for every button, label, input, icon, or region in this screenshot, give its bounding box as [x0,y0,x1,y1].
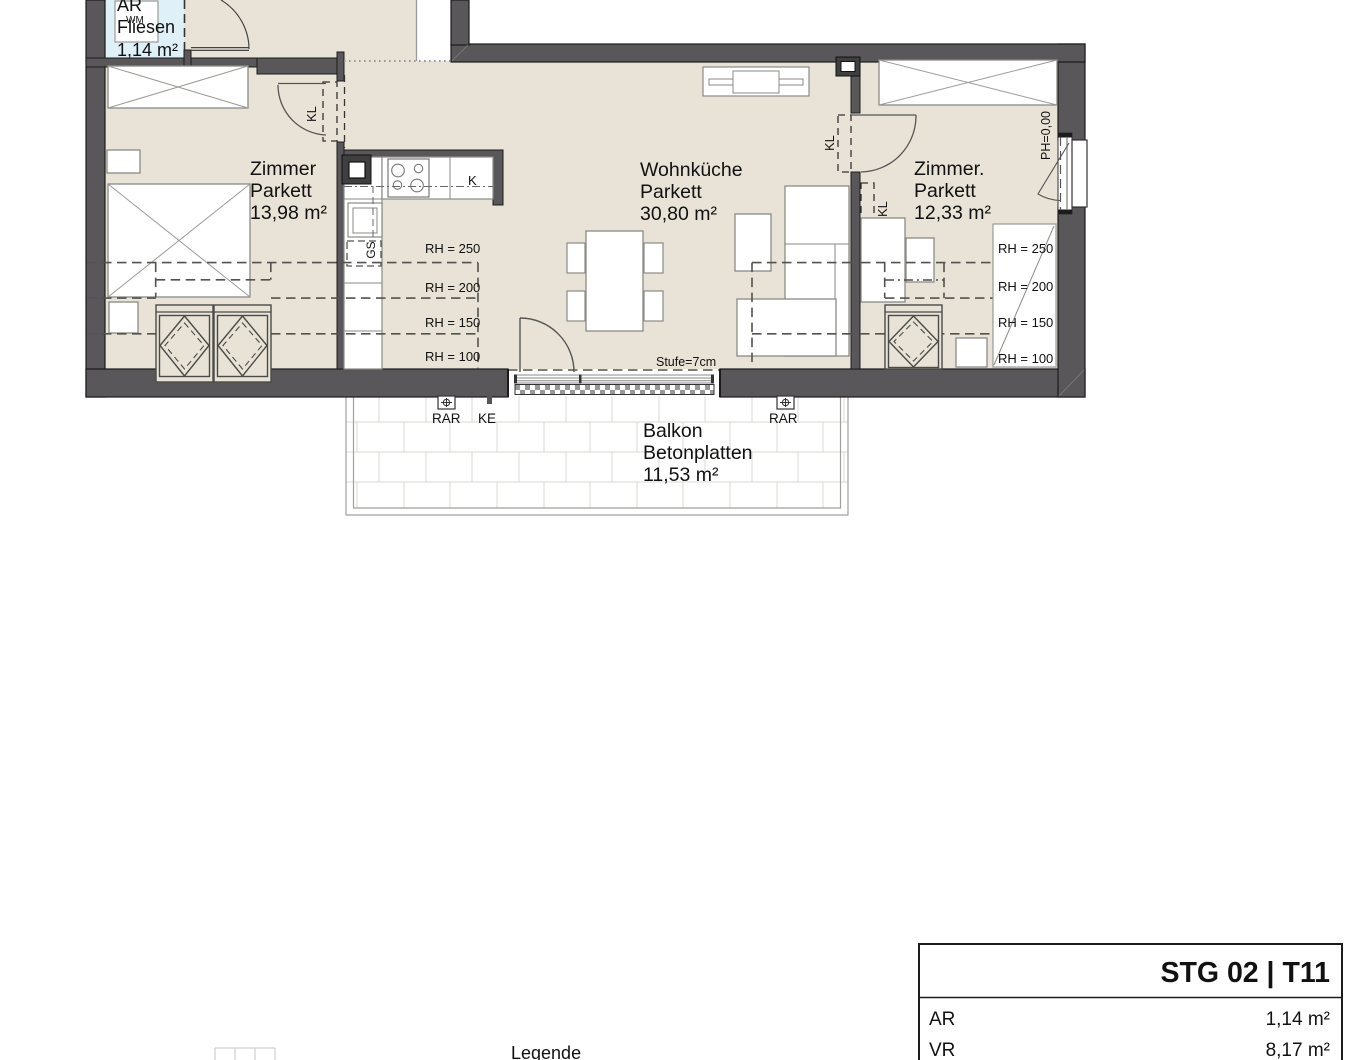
svg-text:AR: AR [929,1009,955,1030]
svg-text:RH = 150: RH = 150 [998,315,1053,330]
svg-text:KE: KE [478,411,496,426]
svg-text:STG 02 | T11: STG 02 | T11 [1160,957,1330,989]
svg-text:Balkon: Balkon [643,420,703,442]
svg-text:RH = 150: RH = 150 [425,315,480,330]
svg-text:PH=0,00: PH=0,00 [1039,111,1053,160]
svg-text:11,53 m²: 11,53 m² [643,464,719,486]
svg-text:Parkett: Parkett [914,180,976,202]
svg-text:Zimmer.: Zimmer. [914,158,984,180]
svg-text:VR: VR [929,1040,955,1060]
svg-text:Legende: Legende [511,1043,581,1060]
svg-text:Parkett: Parkett [250,180,312,202]
svg-text:RH = 200: RH = 200 [998,279,1053,294]
svg-text:30,80 m²: 30,80 m² [640,203,717,225]
svg-text:KL: KL [822,135,837,151]
svg-text:RAR: RAR [432,411,461,426]
svg-text:GS: GS [364,241,378,258]
svg-text:8,17 m²: 8,17 m² [1266,1040,1330,1060]
svg-text:RH = 100: RH = 100 [998,351,1053,366]
svg-text:AR: AR [117,0,142,15]
svg-text:KL: KL [875,201,890,217]
svg-text:KL: KL [304,106,319,122]
svg-text:12,33 m²: 12,33 m² [914,202,991,224]
svg-text:1,14 m²: 1,14 m² [1266,1009,1330,1030]
svg-text:Wohnküche: Wohnküche [640,159,743,181]
svg-text:RH = 250: RH = 250 [998,241,1053,256]
svg-text:RH = 200: RH = 200 [425,280,480,295]
svg-text:Betonplatten: Betonplatten [643,442,753,464]
svg-text:Parkett: Parkett [640,181,702,203]
svg-text:RH = 100: RH = 100 [425,349,480,364]
svg-text:1,14 m²: 1,14 m² [117,40,178,60]
svg-text:RH = 250: RH = 250 [425,241,480,256]
svg-text:Fliesen: Fliesen [117,17,175,37]
svg-text:Zimmer: Zimmer [250,158,317,180]
svg-text:13,98 m²: 13,98 m² [250,202,327,224]
svg-text:Stufe=7cm: Stufe=7cm [656,355,716,369]
svg-text:K: K [468,173,477,188]
svg-text:RAR: RAR [769,411,798,426]
